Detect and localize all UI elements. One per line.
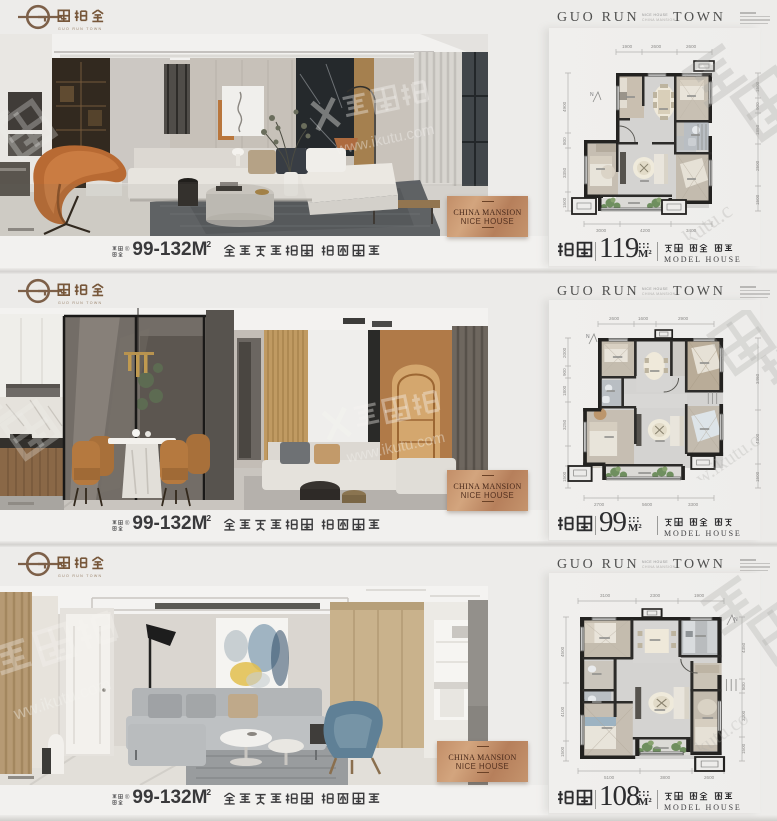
svg-text:2900: 2900 — [678, 316, 689, 321]
svg-text:3250: 3250 — [562, 419, 567, 430]
svg-text:800: 800 — [562, 137, 567, 145]
svg-text:GUO RUN TOWN: GUO RUN TOWN — [58, 27, 102, 31]
svg-text:4100: 4100 — [560, 706, 565, 717]
svg-text:4200: 4200 — [640, 228, 651, 233]
svg-text:3350: 3350 — [562, 167, 567, 178]
svg-text:4300: 4300 — [755, 433, 760, 444]
svg-text:N: N — [734, 617, 738, 623]
svg-text:4350: 4350 — [741, 642, 746, 653]
svg-text:1500: 1500 — [560, 746, 565, 757]
svg-text:N: N — [586, 334, 590, 340]
svg-text:1500: 1500 — [562, 197, 567, 208]
svg-text:1850: 1850 — [755, 124, 760, 135]
svg-text:2600: 2600 — [609, 316, 620, 321]
svg-text:2000: 2000 — [562, 347, 567, 358]
svg-text:GUO RUN TOWN: GUO RUN TOWN — [58, 574, 102, 578]
svg-text:N: N — [590, 92, 594, 98]
svg-text:900: 900 — [562, 368, 567, 376]
svg-text:1500: 1500 — [562, 471, 567, 482]
svg-text:2500: 2500 — [755, 160, 760, 171]
svg-text:1900: 1900 — [694, 593, 705, 598]
svg-text:5600: 5600 — [642, 502, 653, 507]
svg-text:1800: 1800 — [562, 385, 567, 396]
svg-text:1900: 1900 — [622, 44, 633, 49]
svg-text:3400: 3400 — [686, 228, 697, 233]
svg-text:1500: 1500 — [741, 743, 746, 754]
svg-text:1500: 1500 — [755, 81, 760, 92]
svg-text:GUO RUN TOWN: GUO RUN TOWN — [58, 301, 102, 305]
svg-text:4500: 4500 — [560, 646, 565, 657]
svg-text:3200: 3200 — [741, 710, 746, 721]
svg-text:1500: 1500 — [755, 194, 760, 205]
svg-text:3300: 3300 — [688, 502, 699, 507]
svg-text:3800: 3800 — [660, 775, 671, 780]
svg-text:2600: 2600 — [686, 44, 697, 49]
svg-text:3460: 3460 — [755, 373, 760, 384]
svg-text:900: 900 — [755, 102, 760, 110]
svg-text:2600: 2600 — [651, 44, 662, 49]
svg-text:4900: 4900 — [562, 101, 567, 112]
svg-text:2600: 2600 — [704, 775, 715, 780]
svg-text:2300: 2300 — [650, 593, 661, 598]
svg-text:3100: 3100 — [600, 593, 611, 598]
svg-text:1600: 1600 — [638, 316, 649, 321]
svg-text:1500: 1500 — [755, 471, 760, 482]
svg-text:800: 800 — [741, 682, 746, 690]
